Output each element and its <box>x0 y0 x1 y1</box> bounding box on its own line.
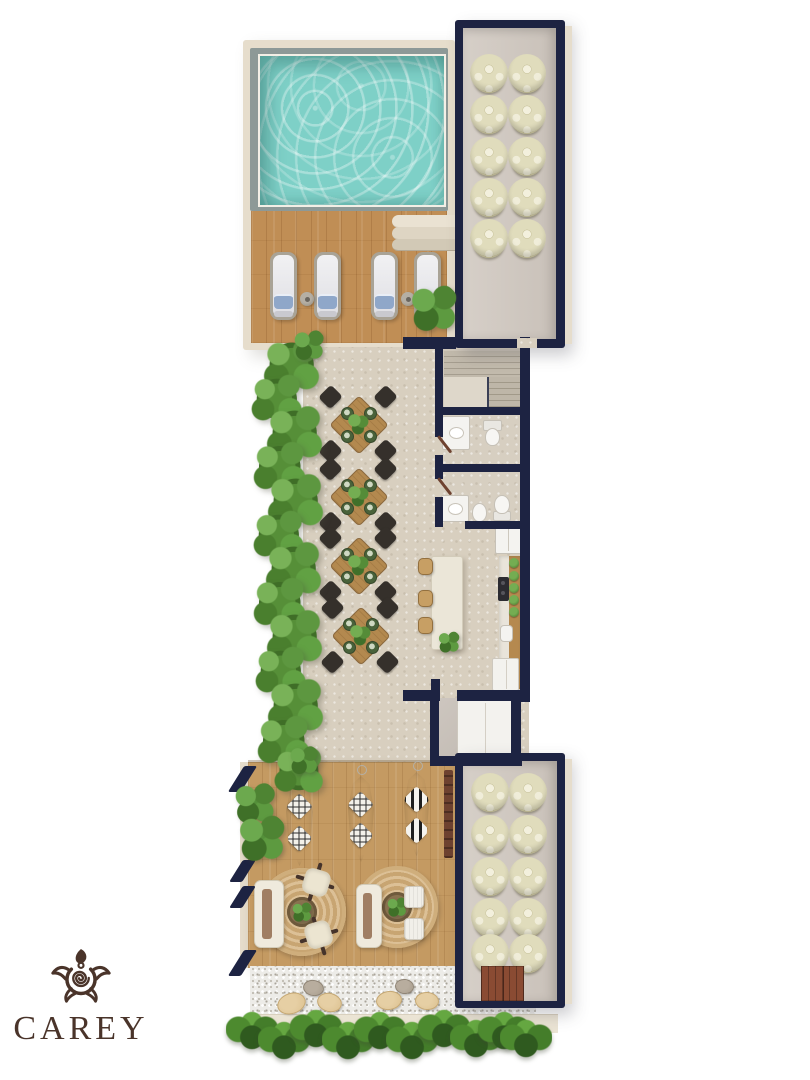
lounger-footrest <box>274 311 293 317</box>
kitchen-sink <box>500 625 513 642</box>
wall <box>403 337 456 349</box>
hanging-chair-hook <box>357 765 367 775</box>
stairs-rail <box>487 377 489 407</box>
stacked-lounger-stack <box>509 815 547 853</box>
side-chair <box>404 918 424 940</box>
stacked-lounger-stack <box>508 54 546 92</box>
table-centerpiece-plant <box>348 623 372 647</box>
dining-chair <box>373 457 398 482</box>
wood-mat <box>481 966 524 1001</box>
table-center <box>305 297 310 302</box>
dining-chair <box>375 650 400 675</box>
deck-step <box>392 239 455 251</box>
dining-chair <box>318 385 343 410</box>
patterned-pillow <box>347 791 374 818</box>
counter-plant <box>509 571 519 581</box>
sofa-cushion <box>363 893 372 939</box>
hanging-chair-hook <box>413 761 423 771</box>
dining-chair <box>375 596 400 621</box>
stack-room-bottom <box>463 761 557 1001</box>
wall <box>511 690 521 766</box>
counter-plant <box>509 558 519 568</box>
sofa <box>356 884 382 948</box>
lounger-pillow <box>318 294 337 309</box>
utility-wardrobe <box>457 700 513 759</box>
dining-chair <box>320 596 345 621</box>
counter-plant <box>509 595 519 605</box>
lounger-pillow <box>274 294 293 309</box>
dining-chair <box>373 526 398 551</box>
turtle-shell-spiral <box>73 972 89 986</box>
table-centerpiece-plant <box>346 484 370 508</box>
dining-chair <box>318 526 343 551</box>
table-centerpiece-plant <box>346 553 370 577</box>
stacked-lounger-stack <box>470 178 508 216</box>
door-opening <box>517 338 537 348</box>
potted-plant <box>288 744 320 776</box>
sink-bowl <box>449 427 464 439</box>
hedge-row <box>244 1022 560 1078</box>
hedge-tuft <box>500 1018 552 1062</box>
wall-face <box>565 26 572 344</box>
wardrobe-divider <box>485 703 486 755</box>
kitchen-lower-cabinet <box>492 658 519 691</box>
stacked-lounger-stack <box>509 857 547 895</box>
patterned-pillow <box>403 786 430 813</box>
counter-plant <box>509 607 519 617</box>
stove <box>498 577 509 601</box>
chair-seat <box>302 918 334 950</box>
stacked-lounger-stack <box>509 773 547 811</box>
stairs-landing <box>444 377 488 407</box>
wall-face <box>565 759 572 1004</box>
stacked-lounger-stack <box>470 219 508 257</box>
sun-lounger <box>371 252 398 320</box>
lounger-pillow <box>375 294 394 309</box>
potted-plant <box>236 812 288 864</box>
bathroom-2-toilet <box>494 495 510 514</box>
wall <box>520 337 530 702</box>
island-stool <box>418 590 433 607</box>
stacked-lounger-stack <box>509 898 547 936</box>
stacked-lounger-stack <box>471 815 509 853</box>
stacked-lounger-stack <box>508 137 546 175</box>
console-shelf <box>444 770 453 858</box>
lounger-footrest <box>318 311 337 317</box>
mat-seam <box>503 966 504 1001</box>
stacked-lounger-stack <box>470 95 508 133</box>
stacked-lounger-stack <box>508 95 546 133</box>
turtle-neck <box>78 963 83 968</box>
bathroom-1-toilet <box>485 428 500 446</box>
dining-set <box>316 591 404 679</box>
lounger-footrest <box>375 311 394 317</box>
cabinet-divider <box>506 660 507 689</box>
stairs-lower-flight <box>488 377 520 407</box>
side-chair <box>404 886 424 908</box>
wall <box>435 407 443 437</box>
stacked-lounger-stack <box>471 857 509 895</box>
stacked-lounger-stack <box>470 54 508 92</box>
island-stool <box>418 617 433 634</box>
wall <box>430 756 522 766</box>
turtle-head <box>76 950 85 963</box>
sofa <box>254 880 284 948</box>
stairs-upper-flight <box>444 351 520 377</box>
pool <box>258 54 446 207</box>
stacked-lounger-stack <box>471 773 509 811</box>
wall <box>435 407 530 415</box>
stove-knob <box>501 581 505 585</box>
table-centerpiece-plant <box>346 412 370 436</box>
wall <box>435 497 443 527</box>
turtle-icon <box>50 944 112 1010</box>
sun-lounger <box>314 252 341 320</box>
stacked-lounger-stack <box>470 137 508 175</box>
wall <box>435 464 530 472</box>
potted-plant <box>408 282 460 334</box>
sofa-cushion <box>262 889 272 939</box>
stove-knob <box>501 591 505 595</box>
bathroom-2-vanity <box>441 495 469 522</box>
dining-chair <box>318 457 343 482</box>
wall <box>430 690 439 766</box>
wall <box>435 349 443 407</box>
floor-plan: CAREY <box>0 0 810 1080</box>
island-plant <box>437 630 461 654</box>
dining-chair <box>373 385 398 410</box>
stacked-lounger-stack <box>508 178 546 216</box>
side-table <box>300 292 314 306</box>
island-stool <box>418 558 433 575</box>
stacked-lounger-stack <box>508 219 546 257</box>
sink-bowl <box>448 503 463 515</box>
stacked-lounger-stack <box>471 898 509 936</box>
sun-lounger <box>270 252 297 320</box>
brand-wordmark: CAREY <box>10 1010 152 1048</box>
counter-plant <box>509 583 519 593</box>
wall <box>465 521 530 529</box>
stack-room-top <box>463 28 556 339</box>
potted-plant <box>292 328 326 362</box>
bathroom-2-bidet <box>472 503 487 522</box>
